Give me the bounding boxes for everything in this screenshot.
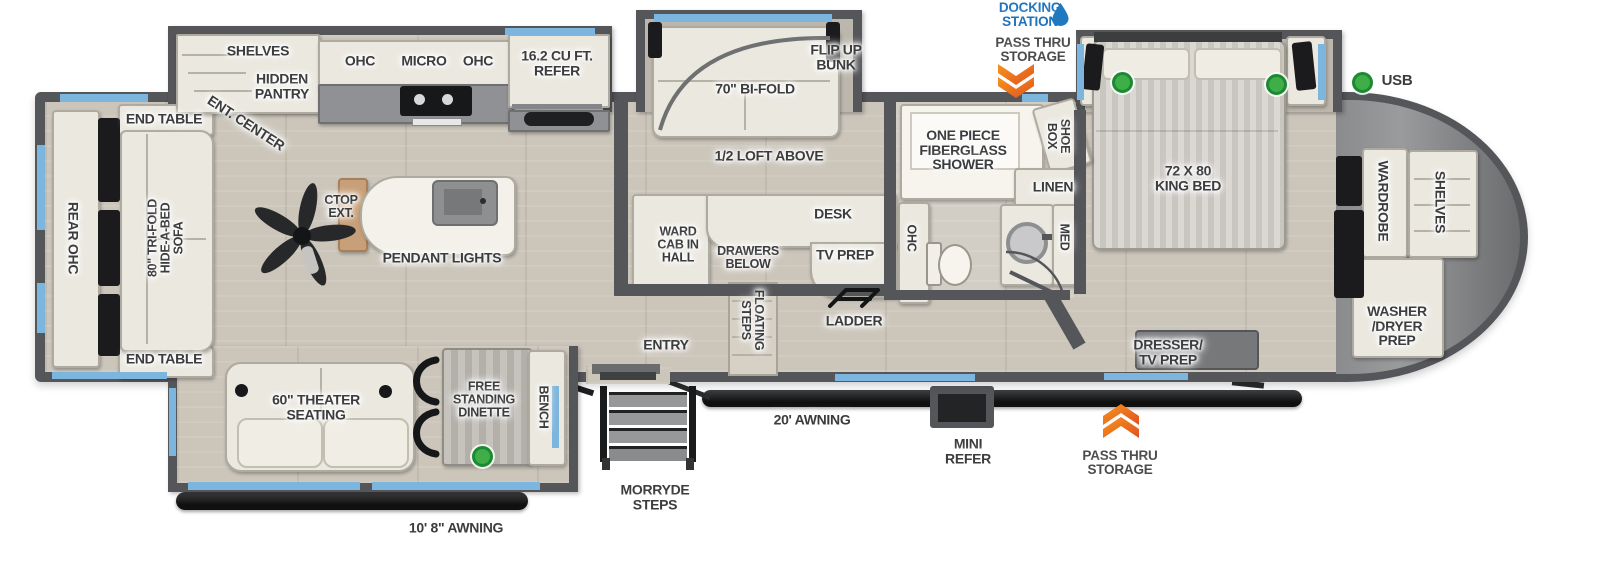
window-strip [37, 145, 45, 230]
refrigerator [508, 34, 610, 108]
bench [528, 350, 566, 466]
water-drop-icon [1052, 3, 1069, 26]
usb-indicator-dot [1112, 72, 1133, 93]
main-awning-bar [702, 390, 1302, 407]
faucet [1042, 234, 1052, 240]
window-strip [37, 283, 45, 333]
ward-cabinet [632, 194, 710, 292]
cooktop-icon [400, 86, 472, 116]
seat-split [320, 368, 322, 416]
morryde-steps-unit [600, 386, 696, 472]
front-shelves-unit [1408, 150, 1478, 258]
window-strip [505, 28, 595, 35]
flip-up-bunk-arc [652, 26, 836, 134]
main-awning-label: 20' AWNING [774, 413, 851, 428]
cupholder [379, 385, 392, 398]
usb-indicator-dot [472, 446, 493, 467]
window-strip [552, 386, 559, 448]
step-tread [609, 428, 687, 443]
step-foot [602, 458, 610, 470]
sink-basin [444, 189, 482, 215]
window-strip [169, 388, 176, 456]
faucet-dot [480, 198, 486, 204]
shelf-line [1414, 178, 1470, 180]
dinette-chair-icon [406, 354, 442, 458]
pass-thru-storage-top-label: PASS THRU STORAGE [995, 36, 1070, 64]
mini-refer-unit [930, 386, 994, 428]
shower-inner [910, 112, 1020, 170]
floating-steps-unit [728, 282, 778, 376]
window-strip [188, 482, 360, 490]
front-wardrobe [1362, 148, 1408, 258]
ladder-icon [826, 286, 882, 308]
burner [414, 94, 425, 105]
step-foot [686, 458, 694, 470]
desk-surface [706, 194, 897, 248]
dresser-tv-prep [1135, 330, 1259, 370]
window-strip [1318, 44, 1325, 100]
hide-a-bed-sofa [120, 130, 214, 352]
step-tread [609, 446, 687, 461]
wardrobe-opening [1336, 156, 1362, 206]
door-swing-icon [998, 250, 1070, 302]
wall-bath-bedroom [1074, 110, 1086, 294]
seat-cushion [323, 418, 409, 468]
usb-legend-label: USB [1382, 73, 1413, 89]
morryde-steps-label: MORRYDE STEPS [621, 482, 690, 511]
chevron-down-icon [996, 64, 1036, 100]
step-line [732, 336, 772, 338]
shelf-line [1414, 204, 1470, 206]
kitchen-shelves-unit [176, 34, 320, 114]
washer-dryer-prep-area [1352, 258, 1444, 358]
headboard [1094, 32, 1282, 42]
ceiling-fan-icon [250, 184, 354, 288]
shelf-line [1414, 230, 1470, 232]
chevron-up-icon [1101, 402, 1141, 438]
pillow [1194, 48, 1282, 80]
step-rail [600, 386, 607, 462]
window-strip [372, 482, 540, 490]
step-rail [689, 386, 696, 462]
step-line [732, 318, 772, 320]
overhead-cabinet-band [318, 40, 512, 88]
shelf-line [182, 54, 240, 56]
pass-thru-storage-bottom-label: PASS THRU STORAGE [1082, 449, 1157, 477]
window-strip [1104, 373, 1188, 380]
step-line [732, 300, 772, 302]
window-strip [654, 14, 832, 22]
usb-indicator-dot [1266, 74, 1287, 95]
kitchen-sink-icon [524, 112, 594, 126]
wardrobe-opening [1334, 210, 1364, 298]
wall-bunk-bath [884, 100, 896, 296]
window-strip [60, 94, 148, 102]
rear-window [98, 210, 120, 286]
step-tread [609, 392, 687, 407]
mini-refer-door [938, 394, 986, 422]
rear-ohc-cabinet [52, 110, 100, 368]
wall-kitchen-bunk [614, 100, 628, 296]
toilet-bowl [938, 244, 972, 286]
window-strip [52, 372, 167, 379]
rv-floorplan: DOCKING STATION PASS THRU STORAGE USB RE… [0, 0, 1600, 582]
rear-window [98, 118, 120, 202]
rear-awning-bar [176, 492, 528, 510]
island-sink-icon [432, 180, 498, 226]
theater-seating [225, 362, 415, 472]
bed-seam [1096, 130, 1278, 132]
step-line [732, 354, 772, 356]
seat-cushion [237, 418, 323, 468]
sofa-seat-split [148, 238, 206, 240]
shelf-line [188, 72, 246, 74]
mini-refer-label: MINI REFER [945, 436, 991, 465]
rear-awning-label: 10' 8" AWNING [409, 521, 503, 536]
window-strip [1077, 44, 1084, 100]
step-tread [609, 410, 687, 425]
cupholder [235, 384, 248, 397]
window-strip [835, 374, 975, 381]
oven-front [412, 118, 462, 126]
shelf-line [194, 90, 252, 92]
refer-handle [512, 104, 602, 109]
usb-legend-dot [1352, 72, 1373, 93]
rear-window [98, 294, 120, 356]
burner [442, 94, 453, 105]
entry-threshold [600, 372, 656, 380]
